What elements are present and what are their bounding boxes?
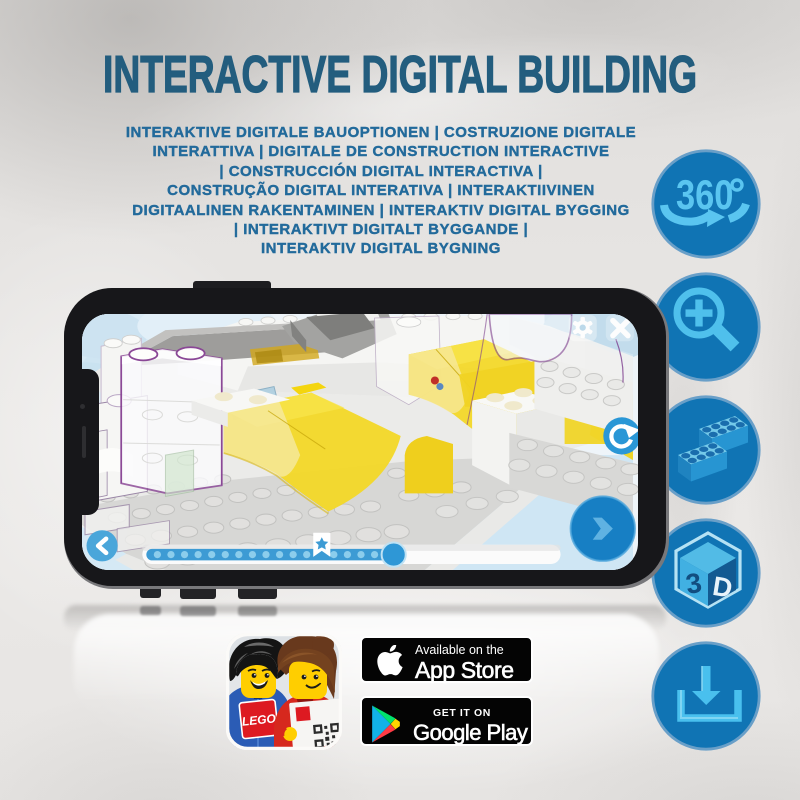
svg-text:360: 360 [676, 172, 733, 219]
